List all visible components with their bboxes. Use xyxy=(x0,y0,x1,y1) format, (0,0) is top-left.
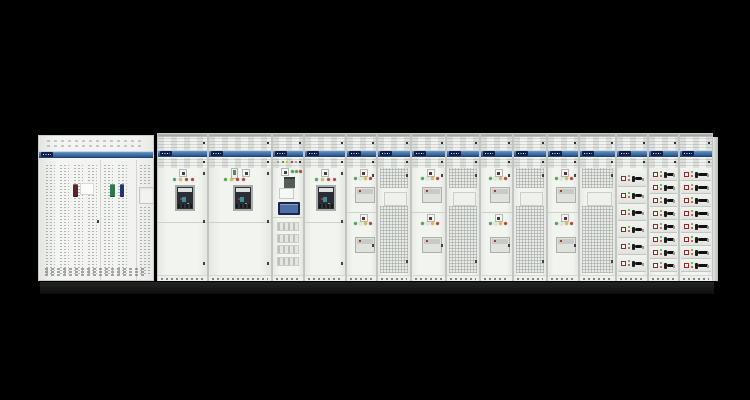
drawer-bay-1 xyxy=(616,133,648,281)
brand-logo-icon xyxy=(550,151,562,156)
air-circuit-breaker xyxy=(175,185,195,211)
controller-screen xyxy=(564,217,567,221)
terminal-row xyxy=(277,222,299,231)
led-indicator-red xyxy=(570,222,573,225)
drawer-led-green xyxy=(691,249,693,251)
drawer-led-green xyxy=(660,236,662,238)
brand-logo-icon xyxy=(682,151,694,156)
brand-band xyxy=(447,150,479,157)
controller-device xyxy=(360,214,368,222)
led-indicator-pale xyxy=(560,222,563,225)
lower-vent-louver xyxy=(347,158,376,168)
brand-logo-icon xyxy=(619,151,631,156)
bay-body xyxy=(273,168,303,275)
led-indicator-pale xyxy=(426,177,429,180)
drawer-led-green xyxy=(691,236,693,238)
mesh-vent-panel-upper xyxy=(380,168,408,188)
drawer-led-red xyxy=(660,175,662,177)
drawer-led-red xyxy=(628,247,630,249)
bay-body xyxy=(481,168,512,275)
drawer-led-red xyxy=(660,240,662,242)
drawer-led-red xyxy=(691,253,693,255)
drawer-led-green xyxy=(660,249,662,251)
led-indicator-red xyxy=(436,222,439,225)
unit-mark xyxy=(560,190,562,192)
lower-vent-louver xyxy=(378,158,410,168)
drawer-tick xyxy=(707,252,709,255)
led-indicator-red xyxy=(369,222,372,225)
label-dashes xyxy=(308,278,342,280)
door-lock-icon xyxy=(406,260,408,263)
door-divider xyxy=(412,212,445,213)
drawer-module xyxy=(681,220,711,233)
drawer-module xyxy=(681,168,711,181)
door-lock-icon xyxy=(406,174,408,177)
door-lock-icon xyxy=(372,244,374,247)
led-indicator-green xyxy=(421,177,424,180)
lower-vent-louver xyxy=(514,158,546,168)
door-lock-icon xyxy=(611,260,613,263)
plinth-base xyxy=(40,281,714,294)
label-dashes xyxy=(350,278,373,280)
led-indicator-green xyxy=(421,222,424,225)
drawer-indicator-square xyxy=(621,210,626,215)
brand-logo-icon xyxy=(449,151,461,156)
controller-screen xyxy=(362,217,365,221)
bay-body xyxy=(580,168,615,275)
perforation-column xyxy=(45,164,55,274)
vent-dot-icon xyxy=(341,142,343,144)
drawer-tick xyxy=(642,263,644,266)
feeder-bay-4 xyxy=(547,133,579,281)
led-indicator-pale xyxy=(426,222,429,225)
door-area xyxy=(39,160,153,280)
upper-vent-louver xyxy=(305,137,345,150)
upper-vent-louver xyxy=(617,137,647,150)
drawer-tick xyxy=(707,213,709,216)
label-dashes xyxy=(415,278,442,280)
perforation-column xyxy=(59,164,69,274)
vent-dot-icon xyxy=(299,142,301,144)
vent-dot-icon xyxy=(611,142,613,144)
drawer-tick xyxy=(673,252,675,255)
drawer-tick xyxy=(707,200,709,203)
lower-vent-louver xyxy=(158,158,207,168)
led-indicator-green xyxy=(224,178,227,181)
brand-band xyxy=(680,150,712,157)
vent-dot-icon xyxy=(267,161,269,163)
door-lock-icon xyxy=(203,220,205,223)
vent-dot-icon xyxy=(643,161,645,163)
door-handle-maroon xyxy=(73,184,78,197)
drawer-led-red xyxy=(691,188,693,190)
drawer-module xyxy=(650,259,677,272)
drawer-handle xyxy=(635,177,642,180)
door-lock-icon xyxy=(611,174,613,177)
led-indicator-green xyxy=(291,170,294,173)
drawer-led-green xyxy=(691,262,693,264)
protection-relay xyxy=(284,177,295,188)
controller-device xyxy=(561,214,569,222)
led-indicator-yellow xyxy=(431,222,434,225)
door-lock-icon xyxy=(203,172,205,175)
drawer-tick xyxy=(707,265,709,268)
vent-dot-icon xyxy=(475,161,477,163)
drawer-led-red xyxy=(660,214,662,216)
controller-device xyxy=(427,169,435,177)
brand-logo-icon xyxy=(483,151,495,156)
drawer-module xyxy=(681,259,711,272)
unit-mark xyxy=(359,240,361,242)
mesh-vent-panel-lower xyxy=(449,206,477,273)
unit-mark xyxy=(426,190,428,192)
mini-indicator-yellow xyxy=(286,161,288,163)
drawer-tick xyxy=(707,174,709,177)
drawer-led-red xyxy=(691,266,693,268)
door-lock-icon xyxy=(508,174,510,177)
drawer-indicator-square xyxy=(653,198,658,203)
door-divider xyxy=(273,217,303,218)
brand-logo-icon xyxy=(211,151,223,156)
led-indicator-green xyxy=(354,177,357,180)
mesh-bay-4 xyxy=(579,133,616,281)
drawer-module xyxy=(618,170,646,187)
controller-screen xyxy=(324,172,327,176)
upper-vent-louver xyxy=(158,137,207,150)
door-lock-icon xyxy=(475,174,477,177)
controller-device xyxy=(495,214,503,222)
drawer-indicator-square xyxy=(684,224,689,229)
drawer-led-green xyxy=(628,209,630,211)
mesh-vent-panel-upper xyxy=(582,168,613,188)
drawer-tick xyxy=(673,265,675,268)
drawer-led-red xyxy=(691,175,693,177)
perforation-column xyxy=(139,206,151,274)
perforation-column xyxy=(73,164,83,274)
drawer-module xyxy=(650,246,677,259)
lineup-end-panel xyxy=(713,137,718,281)
bay-body xyxy=(209,168,271,275)
upper-vent-louver xyxy=(447,137,479,150)
withdrawable-unit xyxy=(355,187,375,203)
drawer-module xyxy=(618,187,646,204)
drawer-module xyxy=(650,207,677,220)
controller-screen xyxy=(497,172,500,176)
door-lock-icon xyxy=(441,174,443,177)
drawer-module xyxy=(650,233,677,246)
drawer-led-green xyxy=(660,171,662,173)
drawer-tick xyxy=(707,226,709,229)
vent-dot-icon xyxy=(508,142,510,144)
door-lock-icon xyxy=(542,174,544,177)
drawer-module xyxy=(681,207,711,220)
metering-hmi-bay xyxy=(272,133,304,281)
label-dashes xyxy=(683,278,709,280)
door-divider xyxy=(209,222,271,223)
acb-label xyxy=(319,188,333,192)
upper-vent-louver xyxy=(649,137,678,150)
acb-ribs xyxy=(319,204,333,208)
mesh-vent-panel-upper xyxy=(516,168,544,188)
door-lock-icon xyxy=(508,244,510,247)
door-divider xyxy=(548,212,578,213)
label-dashes xyxy=(212,278,268,280)
brand-logo-icon xyxy=(275,151,287,156)
label-dashes xyxy=(161,278,204,280)
drawer-indicator-square xyxy=(684,250,689,255)
label-dashes xyxy=(450,278,476,280)
brand-band xyxy=(273,150,303,157)
drawer-led-green xyxy=(660,262,662,264)
acb-label xyxy=(178,188,192,192)
drawer-indicator-square xyxy=(621,193,626,198)
top-perforation-row xyxy=(47,140,145,142)
bay-body xyxy=(305,168,345,275)
drawer-module xyxy=(681,194,711,207)
brand-logo-icon xyxy=(160,151,172,156)
led-indicator-green xyxy=(489,177,492,180)
mesh-window xyxy=(453,192,476,206)
led-indicator-yellow xyxy=(321,178,324,181)
drawer-module xyxy=(618,238,646,255)
brand-logo-icon xyxy=(582,151,594,156)
controller-device xyxy=(179,169,187,177)
drawer-indicator-square xyxy=(684,198,689,203)
brand-band xyxy=(580,150,615,157)
drawer-indicator-square xyxy=(653,263,658,268)
led-indicator-yellow xyxy=(499,177,502,180)
acb-ribs xyxy=(236,204,250,208)
led-indicator-red xyxy=(299,170,302,173)
drawer-indicator-square xyxy=(653,237,658,242)
led-indicator-yellow xyxy=(431,177,434,180)
controller-device xyxy=(360,169,368,177)
perforation-column xyxy=(117,164,127,274)
brand-band xyxy=(548,150,578,157)
acb-handle xyxy=(182,197,186,202)
hmi-touchscreen xyxy=(278,202,300,215)
bay-body xyxy=(347,168,376,275)
meter-screen xyxy=(233,170,236,175)
drawer-indicator-square xyxy=(653,211,658,216)
vent-dot-icon xyxy=(674,161,676,163)
lower-vent-louver xyxy=(649,158,678,168)
upper-vent-louver xyxy=(481,137,512,150)
withdrawable-unit xyxy=(556,237,576,253)
drawer-led-green xyxy=(660,223,662,225)
mesh-bay-2 xyxy=(446,133,480,281)
drawer-module xyxy=(618,255,646,272)
perforation-column xyxy=(103,164,113,274)
door-lock-icon xyxy=(341,262,343,265)
controller-device xyxy=(427,214,435,222)
lower-vent-louver xyxy=(273,158,303,168)
drawer-led-green xyxy=(691,223,693,225)
brand-logo-icon xyxy=(41,152,53,157)
drawer-led-green xyxy=(691,171,693,173)
vent-dot-icon xyxy=(611,161,613,163)
drawer-led-red xyxy=(628,213,630,215)
door-lock-icon xyxy=(574,244,576,247)
air-circuit-breaker xyxy=(233,185,253,211)
door-lock-icon xyxy=(267,262,269,265)
bottom-perforation-row xyxy=(45,268,147,270)
vent-dot-icon xyxy=(203,161,205,163)
mesh-vent-panel-upper xyxy=(449,168,477,188)
mesh-bay-3 xyxy=(513,133,547,281)
acb-handle xyxy=(240,197,244,202)
door-divider xyxy=(347,212,376,213)
lower-vent-louver xyxy=(447,158,479,168)
lower-vent-louver xyxy=(481,158,512,168)
drawer-led-red xyxy=(691,227,693,229)
label-dashes xyxy=(517,278,543,280)
drawer-handle xyxy=(635,211,642,214)
door-lock-icon xyxy=(542,260,544,263)
label-dashes xyxy=(381,278,407,280)
drawer-indicator-square xyxy=(684,237,689,242)
unit-mark xyxy=(426,240,428,242)
incomer-perforated-cabinet xyxy=(38,135,154,281)
brand-band xyxy=(617,150,647,157)
upper-vent-louver xyxy=(580,137,615,150)
meter-box xyxy=(279,188,294,199)
drawer-indicator-square xyxy=(684,185,689,190)
drawer-handle xyxy=(635,262,642,265)
unit-mark xyxy=(494,240,496,242)
drawer-indicator-square xyxy=(621,176,626,181)
withdrawable-unit xyxy=(422,187,442,203)
drawer-led-green xyxy=(691,184,693,186)
vent-dot-icon xyxy=(475,142,477,144)
door-divider xyxy=(158,222,207,223)
brand-band xyxy=(649,150,678,157)
led-indicator-green xyxy=(489,222,492,225)
drawer-tick xyxy=(642,212,644,215)
bay-body xyxy=(378,168,410,275)
led-indicator-red xyxy=(504,222,507,225)
drawer-tick xyxy=(673,174,675,177)
led-indicator-green xyxy=(295,170,298,173)
bay-body xyxy=(680,168,712,275)
vent-dot-icon xyxy=(574,142,576,144)
drawer-tick xyxy=(642,195,644,198)
brand-logo-icon xyxy=(307,151,319,156)
led-indicator-red xyxy=(333,178,336,181)
controller-screen xyxy=(362,172,365,176)
label-dashes xyxy=(620,278,644,280)
drawer-handle xyxy=(635,245,642,248)
mesh-vent-panel-lower xyxy=(516,206,544,273)
bottom-perforation-row xyxy=(45,274,147,276)
vent-dot-icon xyxy=(441,161,443,163)
vent-dot-icon xyxy=(508,161,510,163)
drawer-module xyxy=(650,194,677,207)
switchboard-photo xyxy=(0,0,750,400)
drawer-led-red xyxy=(628,230,630,232)
drawer-module xyxy=(681,181,711,194)
bay-body xyxy=(447,168,479,275)
led-indicator-red xyxy=(185,178,188,181)
drawer-tick xyxy=(642,178,644,181)
door-divider xyxy=(481,212,512,213)
door-lock-icon xyxy=(372,174,374,177)
controller-screen xyxy=(497,217,500,221)
vent-dot-icon xyxy=(441,142,443,144)
led-indicator-yellow xyxy=(179,178,182,181)
drawer-led-green xyxy=(660,184,662,186)
unit-mark xyxy=(560,240,562,242)
drawer-module xyxy=(618,204,646,221)
door-lock-icon xyxy=(341,172,343,175)
vent-dot-icon xyxy=(542,161,544,163)
mesh-window xyxy=(384,192,407,206)
withdrawable-unit xyxy=(490,187,510,203)
led-indicator-pale xyxy=(560,177,563,180)
drawer-module xyxy=(650,220,677,233)
acb-bay-2 xyxy=(208,133,272,281)
brand-logo-icon xyxy=(414,151,426,156)
drawer-indicator-square xyxy=(621,244,626,249)
feeder-bay-2 xyxy=(411,133,446,281)
drawer-bay-3 xyxy=(679,133,713,281)
led-indicator-red xyxy=(191,178,194,181)
vent-dot-icon xyxy=(299,161,301,163)
drawer-tick xyxy=(707,239,709,242)
led-indicator-yellow xyxy=(565,222,568,225)
acb-indicator-red xyxy=(321,198,323,200)
drawer-tick xyxy=(642,229,644,232)
lower-vent-louver xyxy=(580,158,615,168)
vent-dot-icon xyxy=(203,142,205,144)
upper-vent-louver xyxy=(514,137,546,150)
brand-band xyxy=(158,150,207,157)
feeder-bay-1 xyxy=(346,133,377,281)
controller-screen xyxy=(284,171,287,175)
door-gap xyxy=(100,160,101,280)
drawer-tick xyxy=(673,213,675,216)
door-handle-navy xyxy=(120,184,124,197)
door-lock-icon xyxy=(441,244,443,247)
mesh-bay-1 xyxy=(377,133,411,281)
drawer-module xyxy=(618,221,646,238)
brand-band xyxy=(481,150,512,157)
led-indicator-yellow xyxy=(230,178,233,181)
drawer-led-red xyxy=(660,227,662,229)
door-lock-icon xyxy=(574,174,576,177)
drawer-indicator-square xyxy=(653,250,658,255)
brand-logo-icon xyxy=(380,151,392,156)
vent-dot-icon xyxy=(372,142,374,144)
vent-dot-icon xyxy=(674,142,676,144)
controller-device xyxy=(242,169,250,177)
terminal-row xyxy=(277,245,299,254)
door-divider xyxy=(305,222,345,223)
label-dashes xyxy=(551,278,575,280)
led-indicator-yellow xyxy=(364,222,367,225)
mesh-vent-panel-lower xyxy=(380,206,408,273)
door-lock-icon xyxy=(203,262,205,265)
controller-device xyxy=(281,168,289,176)
drawer-led-red xyxy=(691,214,693,216)
drawer-led-green xyxy=(691,197,693,199)
led-indicator-green xyxy=(555,177,558,180)
upper-vent-louver xyxy=(680,137,712,150)
led-indicator-green xyxy=(555,222,558,225)
door-lock-icon xyxy=(267,220,269,223)
led-indicator-red xyxy=(369,177,372,180)
perforation-column xyxy=(87,164,97,274)
